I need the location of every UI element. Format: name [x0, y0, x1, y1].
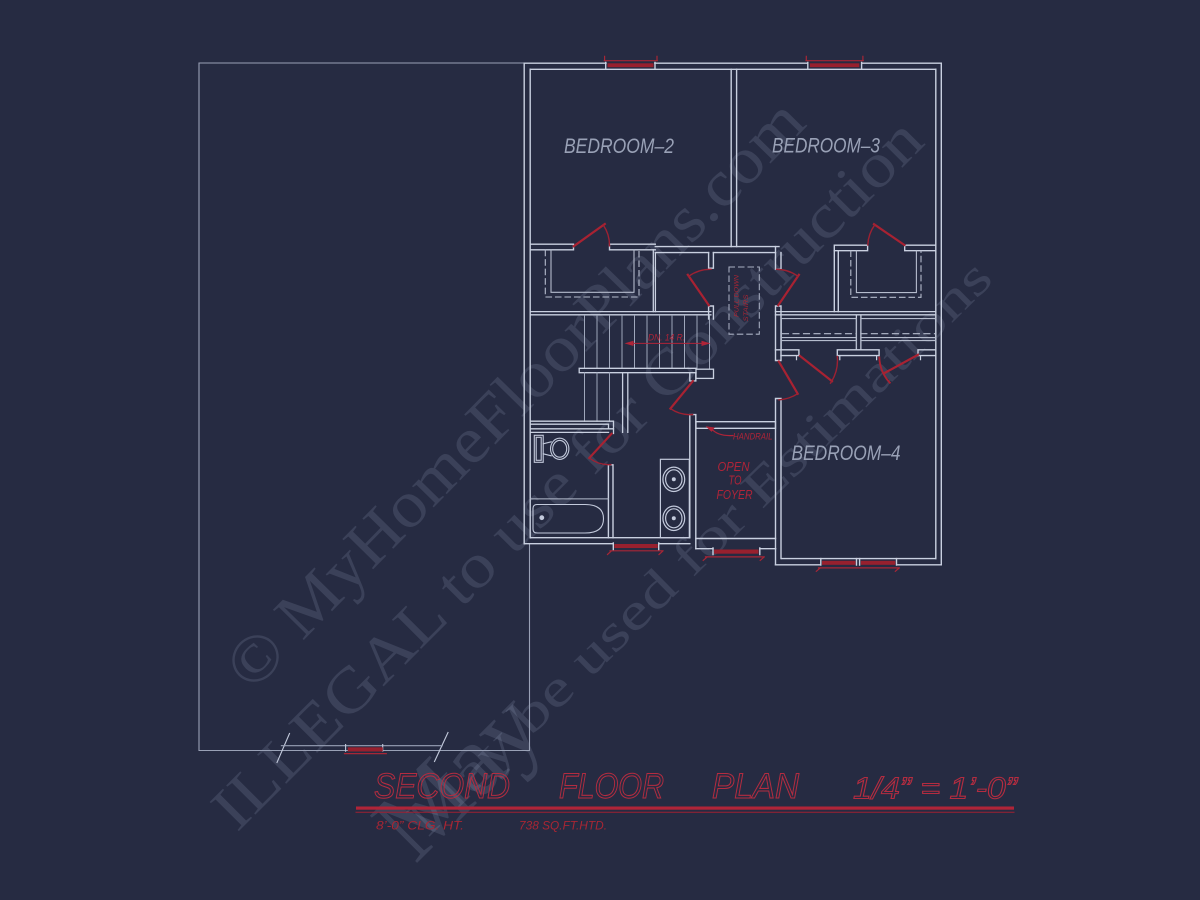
svg-text:BEDROOM–3: BEDROOM–3: [772, 135, 880, 158]
svg-text:OPEN: OPEN: [718, 460, 751, 474]
svg-text:FLOOR: FLOOR: [559, 767, 664, 806]
svg-text:SECOND: SECOND: [374, 767, 510, 806]
svg-text:DN. 14 R.: DN. 14 R.: [648, 333, 685, 343]
svg-text:HANDRAIL: HANDRAIL: [733, 432, 773, 442]
svg-text:TO: TO: [729, 474, 742, 488]
svg-text:738 SQ.FT.HTD.: 738 SQ.FT.HTD.: [519, 819, 607, 833]
svg-text:8’-0” CLG. HT.: 8’-0” CLG. HT.: [376, 819, 464, 833]
svg-text:PLAN: PLAN: [712, 767, 800, 806]
svg-text:BEDROOM–4: BEDROOM–4: [792, 442, 901, 465]
svg-text:BEDROOM–2: BEDROOM–2: [564, 135, 674, 158]
svg-text:PULL DOWN: PULL DOWN: [734, 275, 741, 317]
svg-text:FOYER: FOYER: [717, 488, 753, 502]
svg-text:1/4” = 1’-0”: 1/4” = 1’-0”: [853, 771, 1019, 806]
svg-text:STAIRS: STAIRS: [743, 294, 750, 322]
